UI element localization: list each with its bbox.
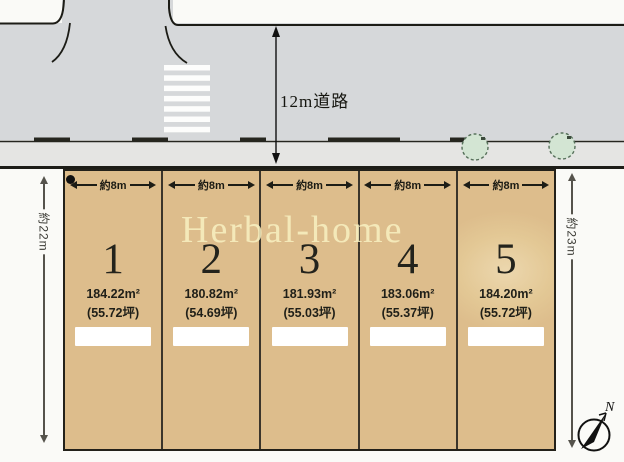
price-box-blank <box>272 327 348 346</box>
crosswalk-icon <box>164 65 210 132</box>
lot-width-dimension: 約8m <box>168 179 255 191</box>
lot-1: 約8m 1 184.22m² (55.72坪) <box>65 171 161 449</box>
survey-point-dot <box>66 175 75 184</box>
lot-layout-plan: 12m道路 約8m 1 184.22m² (55.72坪) 約8m 2 180.… <box>0 0 624 462</box>
compass-north-letter: N <box>604 400 615 415</box>
road-width-arrow-icon <box>272 26 280 164</box>
north-compass-icon: N <box>574 398 624 462</box>
lot-5: 約8m 5 184.20m² (55.72坪) <box>456 171 554 449</box>
lot-width-dimension: 約8m <box>266 179 353 191</box>
lot-area: 183.06m² <box>381 287 435 301</box>
road-linework <box>0 0 624 172</box>
lot-area-tsubo: (55.72坪) <box>480 302 532 321</box>
lot-area: 180.82m² <box>185 287 239 301</box>
lot-width-dimension: 約8m <box>364 179 451 191</box>
price-box-blank <box>468 327 544 346</box>
tree-icon <box>462 133 575 160</box>
lot-area-tsubo: (54.69坪) <box>185 302 237 321</box>
lot-number: 1 <box>102 238 124 281</box>
depth-dimension-left: 約22m <box>37 176 51 443</box>
lot-area: 184.20m² <box>479 287 533 301</box>
depth-label-right: 約23m <box>564 214 581 259</box>
lot-number: 5 <box>495 238 517 281</box>
lot-width-label: 約8m <box>100 177 127 193</box>
lot-width-label: 約8m <box>198 177 225 193</box>
lot-area-tsubo: (55.72坪) <box>87 302 139 321</box>
lot-area: 184.22m² <box>86 287 140 301</box>
lot-width-dimension: 約8m <box>463 179 550 191</box>
price-box-blank <box>173 327 249 346</box>
lot-width-label: 約8m <box>296 177 323 193</box>
watermark: Herbal-home <box>181 208 403 252</box>
lot-width-label: 約8m <box>492 177 519 193</box>
lot-area-tsubo: (55.03坪) <box>283 302 335 321</box>
lot-width-dimension: 約8m <box>70 179 157 191</box>
lot-area-tsubo: (55.37坪) <box>382 302 434 321</box>
price-box-blank <box>75 327 151 346</box>
depth-label-left: 約22m <box>36 209 53 254</box>
lot-width-label: 約8m <box>394 177 421 193</box>
price-box-blank <box>370 327 446 346</box>
lot-area: 181.93m² <box>283 287 337 301</box>
road-width-label: 12m道路 <box>280 87 349 112</box>
